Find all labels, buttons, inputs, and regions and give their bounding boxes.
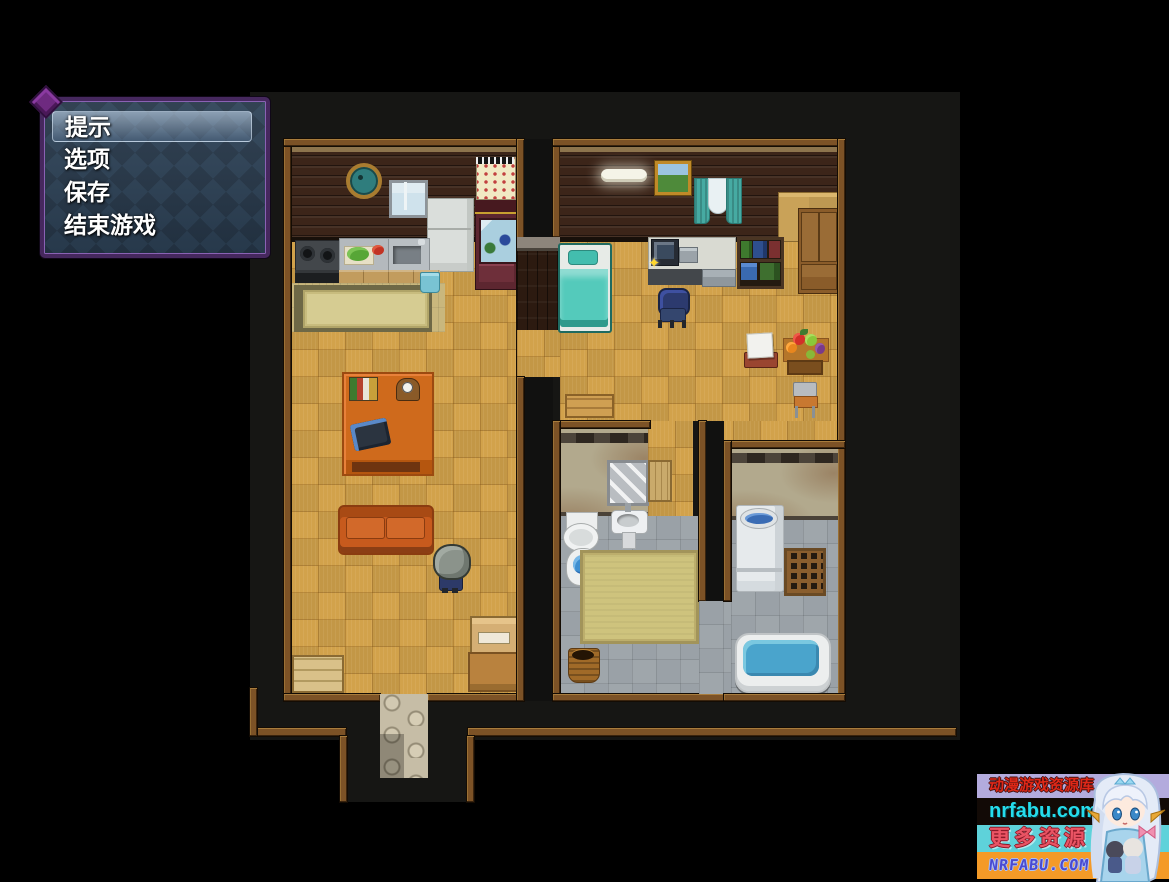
sink-faucet <box>418 239 425 245</box>
doll-head-dark <box>1106 841 1124 859</box>
player-foot-right <box>452 588 458 593</box>
wall-calendar-top-bar <box>476 157 514 164</box>
menu-item-quit-game[interactable]: 结束游戏 <box>52 210 252 241</box>
fan-center-dot <box>358 175 363 180</box>
bed-blanket <box>560 269 608 327</box>
washing-machine-lid <box>741 509 777 528</box>
menu-item-hint[interactable]: 提示 <box>52 111 252 142</box>
fruit-grapes-green <box>806 350 815 359</box>
vegetable-greens <box>347 247 369 261</box>
doll-body-dark <box>1108 857 1122 873</box>
wall-frame-a-bottom-right <box>428 694 524 701</box>
top-gap-between-rooms <box>524 139 553 237</box>
living-table-leg-shadow <box>352 462 420 472</box>
bookshelf-books-green2 <box>760 263 780 280</box>
doll-body-light <box>1125 856 1141 874</box>
office-chair-legs <box>658 320 686 328</box>
kitchen-window-crossbar <box>404 182 407 210</box>
utility-wall-header <box>731 453 838 463</box>
player-foot-left <box>442 588 448 593</box>
yard-wall-bottom-left <box>252 728 346 736</box>
mid-gap-black <box>524 377 553 701</box>
folding-chair-leg-right <box>812 406 815 418</box>
watermark-banner: 动漫游戏资源库 nrfabu.com 更多资源 NRFABU.COM <box>965 770 1169 882</box>
bath-mat <box>580 550 699 644</box>
blue-bucket <box>420 272 440 293</box>
wall-picture <box>655 161 691 195</box>
bookshelf-blue-box <box>741 263 757 280</box>
menu-item-save-label: 保存 <box>64 179 110 205</box>
fruit-table-front <box>787 360 823 375</box>
china-cabinet-pediment <box>475 200 518 214</box>
table-clock-face <box>402 382 413 393</box>
toilet-lid-open <box>564 524 598 551</box>
refrigerator <box>427 198 474 272</box>
bookshelf-books-blue <box>753 241 767 258</box>
vent-grate <box>784 548 826 596</box>
sofa-cushion-right <box>386 517 425 539</box>
folding-chair-back <box>793 382 817 397</box>
stove-burner-left <box>300 246 315 261</box>
refrigerator-door-seam <box>428 228 471 230</box>
girl-eye-glint-right <box>1135 811 1138 814</box>
wall-frame-c-bottom <box>553 694 731 701</box>
wicker-basket-opening <box>572 650 594 660</box>
bookshelf-books-red <box>769 241 780 258</box>
folding-chair-leg-left <box>795 406 798 418</box>
bathroom-sink-faucet <box>625 503 631 512</box>
doll-head-light <box>1123 838 1143 858</box>
folding-chair <box>791 382 817 418</box>
wall-frame-d-top <box>724 441 845 448</box>
cardboard-box-bottom <box>468 652 524 692</box>
sink-basin <box>393 246 421 264</box>
wall-frame-b-left-top <box>553 139 560 237</box>
wall-frame-a-top <box>284 139 524 146</box>
kitchen-window <box>389 180 428 218</box>
office-chair <box>654 288 690 328</box>
bathroom-sink-pedestal <box>622 532 636 549</box>
gap-c-d <box>706 421 724 601</box>
gap-c-d-floor <box>699 601 731 694</box>
wardrobe-drawers <box>801 264 837 290</box>
wall-frame-d-bottom <box>724 694 845 701</box>
desk-drawers <box>702 269 736 287</box>
bathroom-crate <box>648 460 672 502</box>
wall-frame-c-right <box>699 421 706 601</box>
china-cabinet-glass <box>479 218 518 264</box>
pause-menu-window: 提示 选项 保存 结束游戏 <box>40 97 270 258</box>
curtain-sheer <box>708 178 728 214</box>
bathroom-mirror <box>607 460 649 506</box>
fruit-leaf <box>800 329 808 335</box>
fruit-orange <box>786 342 797 353</box>
passage-lintel <box>517 237 560 251</box>
wall-frame-c-top <box>553 421 650 428</box>
wall-frame-b-top <box>553 139 845 146</box>
bookshelf-shelf-divider <box>740 259 781 262</box>
fruit-grapes-purple <box>815 343 825 354</box>
bookshelf-books-green <box>741 241 752 258</box>
printer <box>679 247 698 263</box>
fluorescent-light <box>601 169 647 182</box>
yard-wall-corridor-right <box>467 736 474 802</box>
wooden-step <box>565 394 614 418</box>
player-head <box>433 544 471 580</box>
tomato-plate <box>372 245 384 255</box>
bathroom-wall-header <box>560 433 648 443</box>
menu-item-options-label: 选项 <box>64 146 110 172</box>
sofa-cushion-left <box>346 517 385 539</box>
wardrobe-door-left <box>801 212 819 262</box>
girl-eye-left <box>1113 808 1122 820</box>
curtain-right <box>726 178 742 224</box>
entrance-path-shadow <box>380 734 404 778</box>
bedroom-wall-top-edge <box>560 146 838 152</box>
wall-frame-a-left <box>284 139 291 701</box>
menu-item-hint-label: 提示 <box>65 114 111 140</box>
bathroom-sink-bowl <box>617 514 639 527</box>
wall-frame-a-bottom-left <box>284 694 380 701</box>
player-character <box>431 542 469 594</box>
girl-eye-glint-left <box>1117 811 1120 814</box>
cardboard-box-label <box>478 632 510 644</box>
wall-frame-c-left <box>553 421 560 701</box>
anime-girl-mascot <box>1077 770 1169 882</box>
wall-frame-b-right <box>838 139 845 701</box>
yard-wall-corridor-left <box>340 736 347 802</box>
wardrobe-door-right <box>819 212 837 262</box>
bathtub-water <box>743 640 819 676</box>
yard-wall-bottom-right <box>468 728 956 736</box>
menu-item-options[interactable]: 选项 <box>52 144 252 175</box>
kitchen-mat <box>303 290 429 328</box>
wall-frame-d-left <box>724 441 731 601</box>
stove-front <box>295 270 339 283</box>
girl-eye-right <box>1131 808 1140 820</box>
yard-wall-left-stub <box>250 688 257 736</box>
game-screen: ✦ <box>0 0 1169 882</box>
washing-machine-panel <box>736 568 782 572</box>
menu-item-save[interactable]: 保存 <box>52 177 252 208</box>
china-cabinet-drawers <box>479 264 514 282</box>
kitchen-wall-top-edge <box>291 146 517 152</box>
wooden-crate <box>292 655 344 693</box>
menu-item-quit-label: 结束游戏 <box>64 212 156 238</box>
books-on-table <box>349 377 378 401</box>
ventilation-fan-icon <box>346 163 382 199</box>
stove-burner-right <box>320 248 335 263</box>
bed-pillow <box>568 250 598 265</box>
easel-canvas <box>746 332 773 358</box>
wall-frame-a-right-lower <box>517 377 524 701</box>
corridor-floor <box>517 330 560 377</box>
